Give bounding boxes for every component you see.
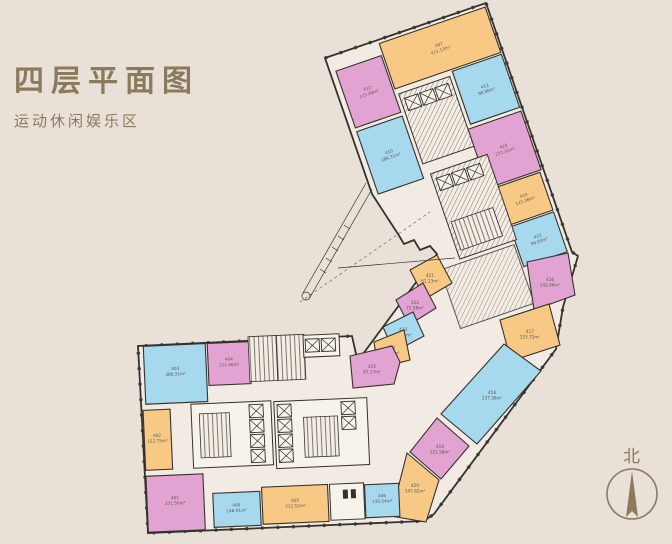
svg-text:115.72m²: 115.72m²	[520, 335, 541, 340]
room-406: 406 135.04m²	[365, 483, 400, 517]
svg-text:402: 402	[153, 433, 162, 438]
svg-text:137.36m²: 137.36m²	[482, 396, 503, 401]
svg-text:122.75m²: 122.75m²	[147, 438, 168, 444]
svg-text:121.58m²: 121.58m²	[430, 450, 451, 455]
svg-text:271.56m²: 271.56m²	[165, 500, 186, 506]
svg-text:72.58m²: 72.58m²	[406, 306, 424, 311]
svg-text:419: 419	[436, 444, 444, 449]
svg-text:400: 400	[232, 502, 241, 507]
svg-text:401: 401	[171, 495, 180, 500]
compass-label: 北	[623, 447, 641, 466]
room-416: 416 142.46m²	[527, 253, 575, 310]
floor-plan: 412 115.49m² 410 186.31m² 407 411.13m² 4…	[0, 0, 672, 544]
compass: 北	[607, 447, 657, 519]
svg-text:405: 405	[291, 498, 300, 503]
svg-text:111.46m²: 111.46m²	[219, 362, 240, 368]
svg-text:146.91m²: 146.91m²	[226, 507, 247, 513]
svg-text:404: 404	[225, 356, 234, 361]
svg-text:416: 416	[546, 277, 554, 282]
svg-text:425: 425	[368, 364, 376, 369]
room-403: 403 388.31m²	[143, 344, 207, 405]
room-400: 400 146.91m²	[213, 491, 261, 527]
room-405: 405 212.52m²	[262, 484, 330, 524]
svg-text:142.46m²: 142.46m²	[540, 283, 561, 288]
svg-text:147.62m²: 147.62m²	[405, 489, 426, 494]
svg-text:420: 420	[411, 483, 419, 488]
svg-text:135.04m²: 135.04m²	[372, 498, 393, 504]
room-425: 425 87.17m²	[350, 346, 400, 388]
room-402: 402 122.75m²	[143, 409, 173, 470]
svg-text:421: 421	[426, 273, 434, 278]
svg-text:418: 418	[488, 390, 496, 395]
north-needle-icon	[626, 471, 638, 517]
svg-text:406: 406	[378, 493, 387, 498]
svg-text:212.52m²: 212.52m²	[285, 503, 306, 509]
svg-text:422: 422	[411, 300, 419, 305]
room-401: 401 271.56m²	[146, 474, 205, 532]
svg-text:61.13m²: 61.13m²	[421, 279, 439, 284]
vestibule	[329, 483, 365, 520]
svg-text:417: 417	[526, 329, 534, 334]
svg-text:388.31m²: 388.31m²	[165, 371, 186, 377]
room-404: 404 111.46m²	[207, 342, 251, 386]
svg-text:87.17m²: 87.17m²	[363, 370, 381, 375]
svg-text:403: 403	[171, 366, 180, 371]
